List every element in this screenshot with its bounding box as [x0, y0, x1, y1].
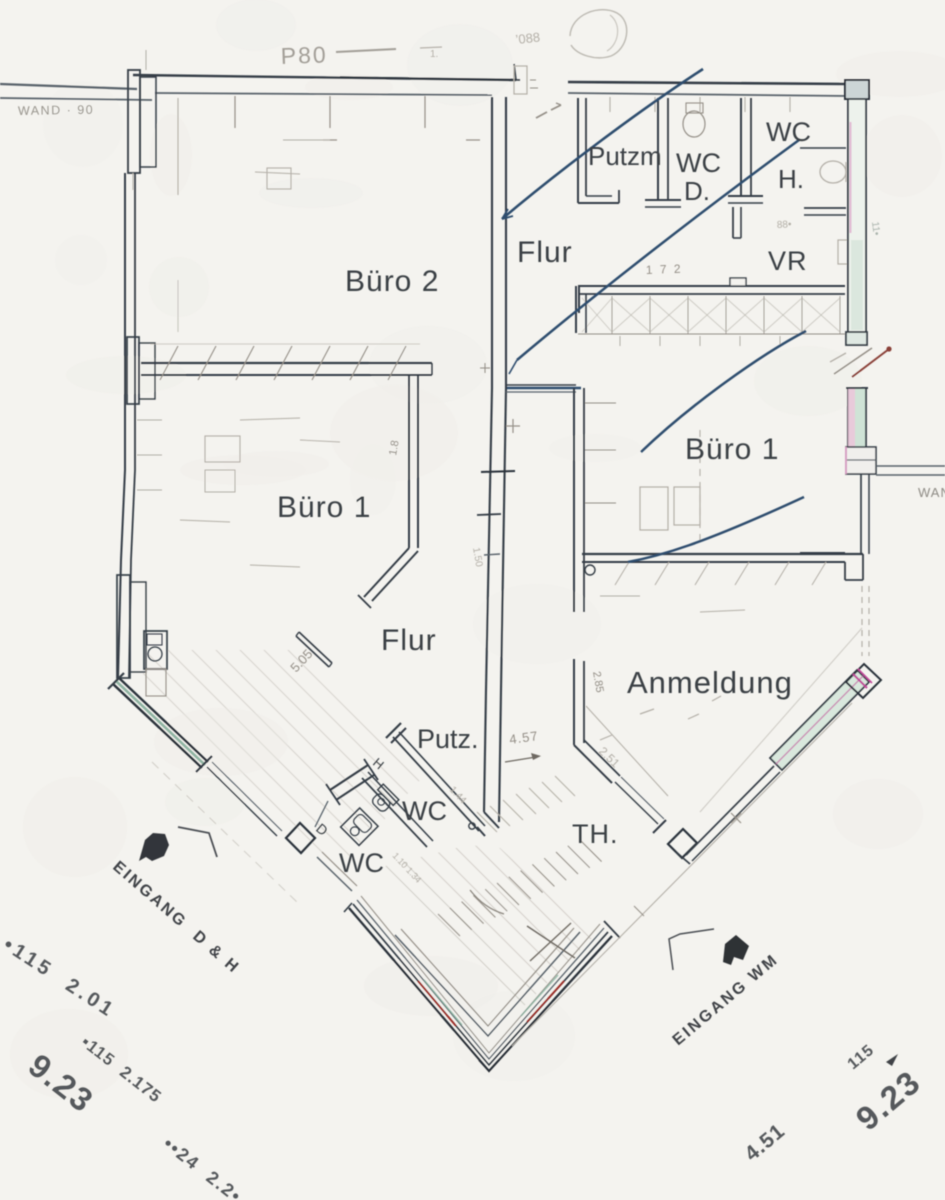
svg-text:11•: 11•: [869, 221, 882, 237]
svg-text:WC: WC: [676, 148, 721, 178]
svg-text:Büro 2: Büro 2: [345, 265, 439, 298]
svg-text:Büro 1: Büro 1: [685, 433, 779, 466]
svg-text:WAND · 90: WAND · 90: [18, 103, 94, 118]
svg-text:TH.: TH.: [572, 819, 619, 849]
svg-text:1.: 1.: [430, 49, 438, 60]
svg-text:1 7 2: 1 7 2: [646, 262, 683, 277]
svg-text:’088: ’088: [515, 29, 541, 46]
svg-text:88•: 88•: [777, 219, 793, 231]
svg-text:Putzm: Putzm: [588, 141, 662, 171]
svg-text:Putz.: Putz.: [417, 724, 479, 754]
svg-text:WC: WC: [766, 117, 811, 147]
svg-text:Anmeldung: Anmeldung: [627, 665, 793, 700]
svg-text:Flur: Flur: [381, 624, 437, 657]
svg-text:H.: H.: [778, 164, 804, 194]
svg-text:WC: WC: [339, 848, 384, 878]
svg-text:VR: VR: [768, 246, 808, 276]
svg-text:WAND: WAND: [918, 485, 945, 500]
svg-text:P80: P80: [280, 41, 328, 69]
svg-text:WC: WC: [402, 796, 447, 826]
svg-text:Büro 1: Büro 1: [277, 491, 371, 524]
svg-text:D.: D.: [684, 176, 710, 206]
svg-text:Flur: Flur: [517, 236, 573, 269]
